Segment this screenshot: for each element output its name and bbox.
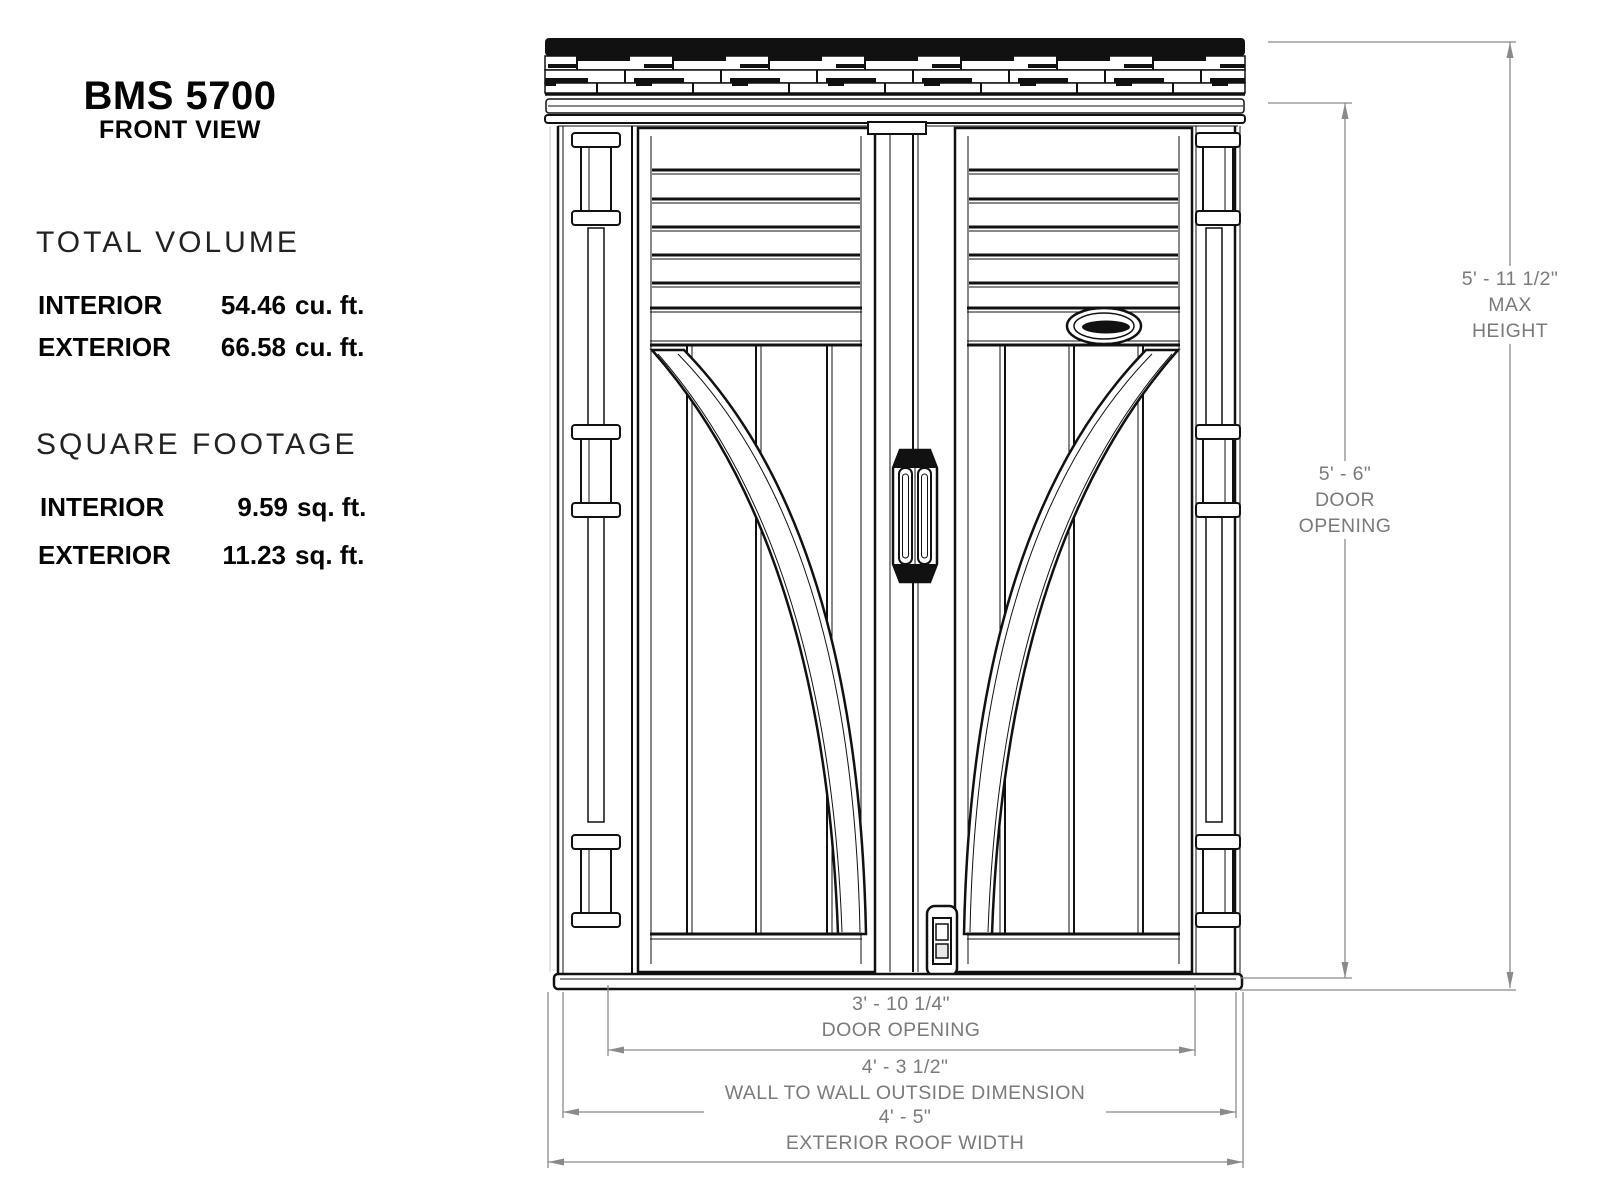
door-opening-width-label: DOOR OPENING — [700, 1017, 1102, 1043]
max-height-value: 5' - 11 1/2" — [1418, 266, 1600, 292]
left-door — [638, 128, 875, 972]
roof-width-value: 4' - 5" — [704, 1104, 1106, 1130]
base-rail — [554, 974, 1242, 989]
wall-to-wall-label: WALL TO WALL OUTSIDE DIMENSION — [654, 1080, 1156, 1106]
door-opening-height-dimension: 5' - 6" DOOR OPENING — [1253, 461, 1437, 539]
door-top-bracket — [868, 122, 926, 134]
suncast-logo — [1067, 308, 1141, 344]
roof — [545, 38, 1245, 123]
door-opening-height-value: 5' - 6" — [1253, 461, 1437, 487]
left-hinge-middle — [572, 425, 620, 517]
wall-to-wall-value: 4' - 3 1/2" — [654, 1054, 1156, 1080]
right-door — [955, 128, 1192, 972]
right-hinge-top — [1196, 133, 1240, 225]
roof-cap — [545, 38, 1245, 56]
right-wall — [1196, 126, 1240, 974]
roof-width-dimension: 4' - 5" EXTERIOR ROOF WIDTH — [704, 1104, 1106, 1156]
door-opening-height-label-2: OPENING — [1253, 513, 1437, 539]
door-latch — [927, 906, 957, 976]
door-opening-width-dimension: 3' - 10 1/4" DOOR OPENING — [700, 991, 1102, 1043]
door-opening-width-value: 3' - 10 1/4" — [700, 991, 1102, 1017]
left-hinge-bottom — [572, 835, 620, 927]
shingle-row-2 — [545, 70, 1245, 83]
door-opening-height-label-1: DOOR — [1253, 487, 1437, 513]
right-wall-channel — [1206, 228, 1222, 822]
roof-width-label: EXTERIOR ROOF WIDTH — [704, 1130, 1106, 1156]
right-hinge-bottom — [1196, 835, 1240, 927]
shingle-row-3 — [545, 83, 1245, 93]
door-handle — [893, 450, 937, 582]
shingle-row-1 — [545, 56, 1245, 70]
max-height-dimension: 5' - 11 1/2" MAX HEIGHT — [1418, 266, 1600, 344]
max-height-label-2: HEIGHT — [1418, 318, 1600, 344]
left-wall-channel — [588, 228, 604, 822]
wall-to-wall-dimension: 4' - 3 1/2" WALL TO WALL OUTSIDE DIMENSI… — [654, 1054, 1156, 1106]
right-hinge-middle — [1196, 425, 1240, 517]
spec-sheet-page: BMS 5700 FRONT VIEW TOTAL VOLUME INTERIO… — [0, 0, 1600, 1184]
left-hinge-top — [572, 133, 620, 225]
max-height-label-1: MAX — [1418, 292, 1600, 318]
